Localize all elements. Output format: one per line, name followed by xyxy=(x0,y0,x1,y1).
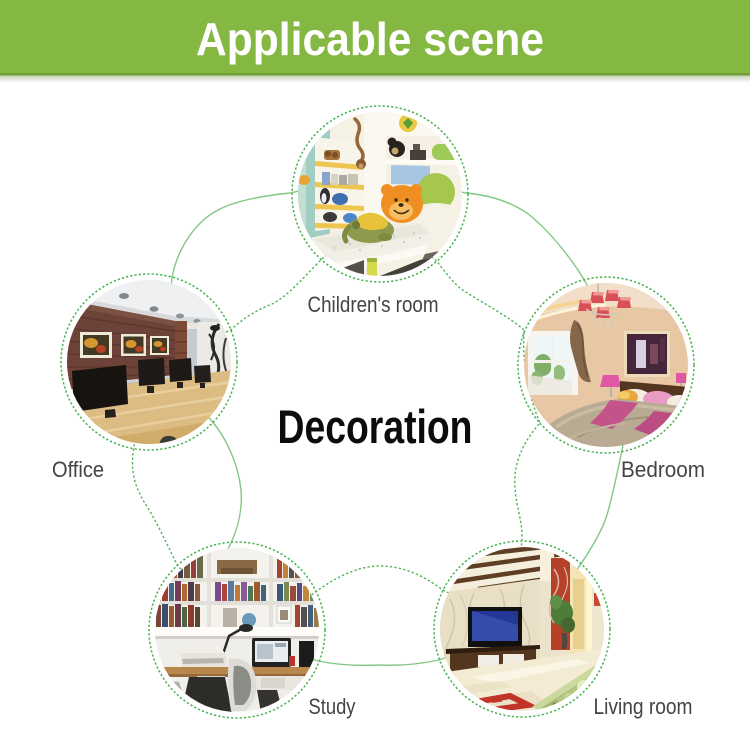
svg-text:Children's room: Children's room xyxy=(308,292,439,317)
svg-text:Decoration: Decoration xyxy=(278,400,473,453)
svg-text:Office: Office xyxy=(52,457,104,482)
svg-text:Living room: Living room xyxy=(594,694,693,719)
svg-text:Applicable scene: Applicable scene xyxy=(196,13,544,65)
svg-text:Study: Study xyxy=(309,694,356,719)
svg-text:Bedroom: Bedroom xyxy=(621,457,705,482)
